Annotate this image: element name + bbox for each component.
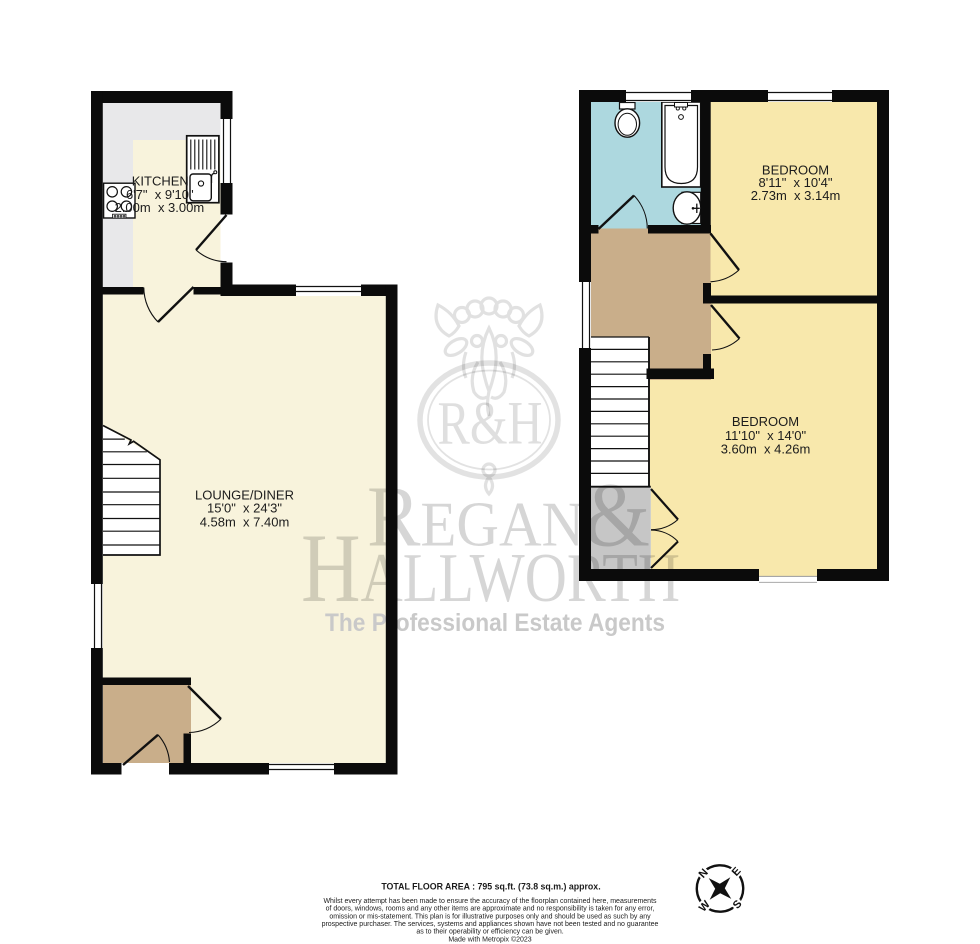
svg-text:2.73m x 3.14m: 2.73m x 3.14m (751, 188, 841, 203)
svg-text:as to their operability or eff: as to their operability or efficiency ca… (416, 929, 563, 936)
svg-text:omission or mis-statement. Thi: omission or mis-statement. This plan is … (329, 913, 651, 920)
svg-text:The Professional Estate Agents: The Professional Estate Agents (325, 609, 665, 637)
svg-text:TOTAL FLOOR AREA : 795 sq.ft.: TOTAL FLOOR AREA : 795 sq.ft. (73.8 sq.m… (381, 882, 600, 892)
svg-text:4.58m x 7.40m: 4.58m x 7.40m (200, 514, 290, 529)
svg-text:Made with Metropix ©2023: Made with Metropix ©2023 (448, 935, 531, 943)
svg-text:Whilst every attempt has been: Whilst every attempt has been made to en… (323, 898, 657, 905)
svg-text:2.00m x 3.00m: 2.00m x 3.00m (115, 200, 205, 215)
svg-text:R&H: R&H (438, 391, 543, 458)
svg-text:15'0" x 24'3": 15'0" x 24'3" (207, 501, 282, 516)
svg-text:3.60m x 4.26m: 3.60m x 4.26m (721, 442, 811, 457)
svg-text:of doors, windows, rooms and a: of doors, windows, rooms and any other i… (326, 906, 655, 913)
svg-text:prospective purchaser. The ser: prospective purchaser. The services, sys… (322, 921, 659, 928)
